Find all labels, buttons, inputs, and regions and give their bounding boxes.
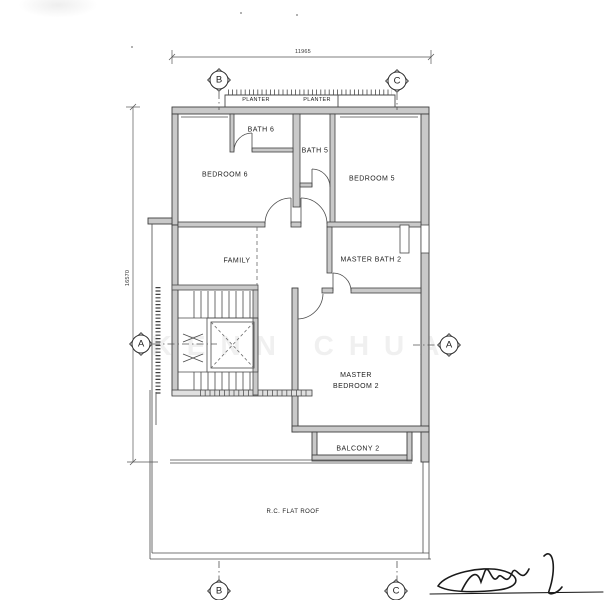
grid-bubble-letter: B	[210, 582, 229, 600]
room-label-family: FAMILY	[223, 258, 250, 265]
staircase	[172, 285, 258, 395]
grid-bubble-c-bottom: C	[382, 577, 410, 600]
room-label-bath-5: BATH 5	[302, 148, 329, 155]
grid-bubble-a-right: A	[435, 331, 463, 359]
signature	[430, 554, 603, 594]
room-label-bath-6: BATH 6	[248, 127, 275, 134]
room-label-bedroom-6: BEDROOM 6	[202, 172, 248, 179]
grid-bubble-b-top: B	[205, 66, 233, 94]
room-label-master-bedroom-2-line1: MASTER	[333, 370, 379, 381]
grid-bubble-c-top: C	[383, 67, 411, 95]
room-label-master-bath-2: MASTER BATH 2	[341, 257, 402, 264]
grid-bubble-letter: A	[132, 335, 151, 354]
grid-bubble-letter: A	[440, 336, 459, 355]
dimension-top-value: 11965	[295, 49, 311, 55]
floor-plan-page: KENN CHUA	[0, 0, 606, 600]
room-label-rc-flat-roof: R.C. FLAT ROOF	[266, 509, 319, 515]
grid-bubble-letter: C	[387, 582, 406, 600]
room-label-planter-right: PLANTER	[303, 97, 330, 103]
room-label-balcony-2: BALCONY 2	[336, 446, 379, 453]
room-label-master-bedroom-2: MASTER BEDROOM 2	[333, 370, 379, 392]
dimension-left-value: 16570	[125, 270, 131, 286]
room-label-planter-left: PLANTER	[242, 97, 269, 103]
grid-bubble-b-bottom: B	[205, 577, 233, 600]
room-label-bedroom-5: BEDROOM 5	[349, 176, 395, 183]
exterior-walls	[148, 107, 429, 462]
grid-bubble-letter: B	[210, 71, 229, 90]
room-label-master-bedroom-2-line2: BEDROOM 2	[333, 381, 379, 392]
grid-bubble-a-left: A	[127, 330, 155, 358]
grid-bubble-letter: C	[388, 72, 407, 91]
